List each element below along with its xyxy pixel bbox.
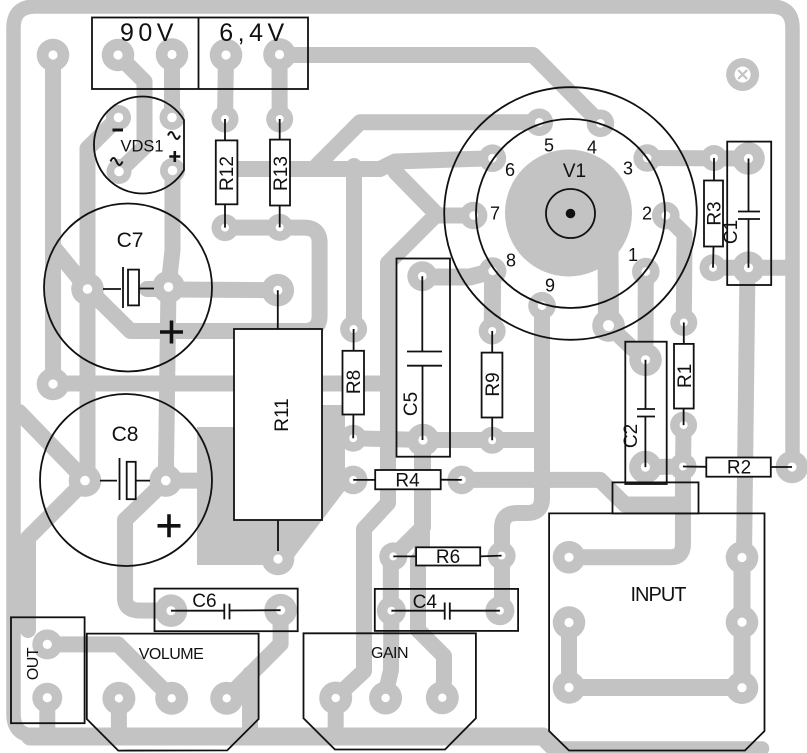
svg-text:VDS1: VDS1 [120, 138, 163, 156]
svg-text:OUT: OUT [25, 647, 42, 680]
svg-text:C1: C1 [721, 220, 742, 244]
svg-text:8: 8 [506, 251, 516, 271]
svg-text:R4: R4 [395, 471, 420, 492]
svg-text:C6: C6 [192, 591, 216, 612]
svg-text:5: 5 [544, 136, 554, 156]
svg-text:R2: R2 [727, 458, 751, 479]
svg-text:R8: R8 [344, 370, 365, 394]
svg-text:2: 2 [642, 204, 652, 224]
svg-text:C7: C7 [117, 229, 144, 252]
svg-text:R1: R1 [675, 364, 696, 388]
svg-text:1: 1 [628, 245, 638, 265]
svg-text:R13: R13 [271, 156, 292, 191]
svg-text:R9: R9 [483, 372, 504, 396]
svg-text:6,4V: 6,4V [219, 19, 288, 47]
svg-text:INPUT: INPUT [631, 584, 687, 606]
svg-text:GAIN: GAIN [371, 645, 408, 662]
svg-text:90V: 90V [120, 19, 178, 47]
svg-text:6: 6 [505, 160, 515, 180]
svg-text:C8: C8 [112, 423, 139, 446]
svg-text:R11: R11 [272, 398, 293, 431]
svg-text:VOLUME: VOLUME [139, 646, 204, 663]
svg-text:C4: C4 [413, 592, 438, 613]
svg-text:R6: R6 [436, 547, 460, 568]
svg-text:V1: V1 [563, 161, 586, 182]
svg-text:C5: C5 [401, 392, 422, 416]
svg-text:C2: C2 [621, 424, 642, 448]
svg-text:9: 9 [545, 276, 555, 296]
svg-text:3: 3 [623, 159, 633, 179]
svg-text:R12: R12 [217, 156, 238, 191]
svg-text:7: 7 [490, 204, 500, 224]
svg-text:4: 4 [587, 138, 597, 158]
